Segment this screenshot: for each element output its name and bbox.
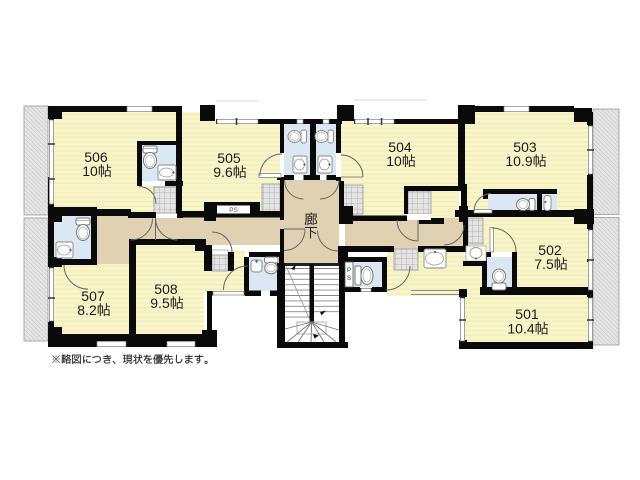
- svg-text:S: S: [347, 276, 351, 282]
- svg-text:8.2: 8.2: [77, 302, 97, 318]
- svg-text:10: 10: [82, 163, 98, 179]
- svg-text:7.5: 7.5: [534, 256, 554, 272]
- svg-text:10: 10: [386, 153, 402, 169]
- svg-text:9.5: 9.5: [150, 295, 170, 311]
- svg-text:PS: PS: [229, 207, 238, 214]
- svg-text:10.9: 10.9: [505, 153, 532, 169]
- svg-text:9.6: 9.6: [213, 164, 233, 180]
- svg-text:10.4: 10.4: [507, 321, 534, 337]
- svg-text:P: P: [347, 268, 351, 274]
